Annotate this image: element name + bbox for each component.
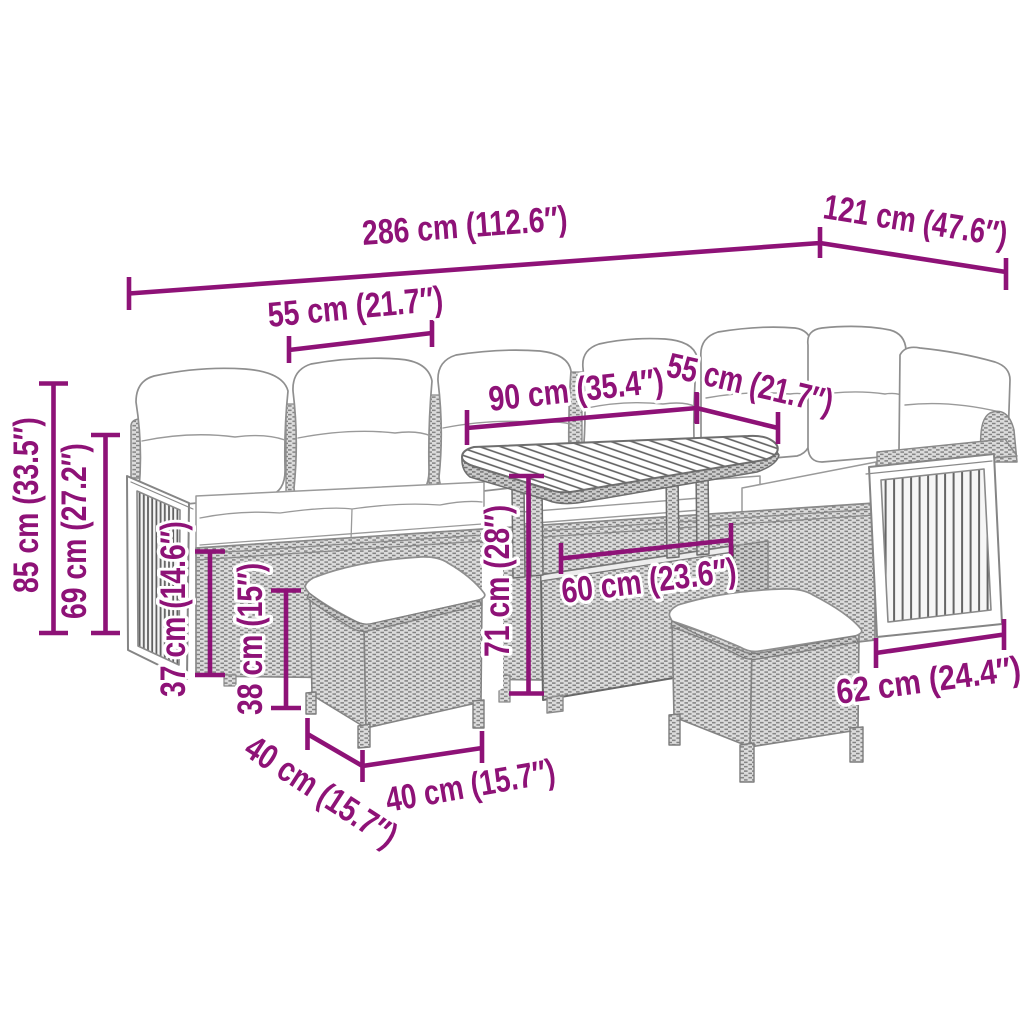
svg-text:38 cm (15″): 38 cm (15″)	[230, 563, 270, 715]
svg-text:286 cm (112.6″): 286 cm (112.6″)	[361, 198, 569, 253]
svg-text:55 cm (21.7″): 55 cm (21.7″)	[266, 278, 445, 334]
svg-text:62 cm (24.4″): 62 cm (24.4″)	[834, 649, 1023, 712]
svg-text:69 cm (27.2″): 69 cm (27.2″)	[54, 443, 94, 619]
svg-text:85 cm (33.5″): 85 cm (33.5″)	[6, 417, 46, 593]
svg-text:121 cm (47.6″): 121 cm (47.6″)	[821, 187, 1010, 254]
svg-text:40 cm (15.7″): 40 cm (15.7″)	[238, 727, 405, 855]
svg-text:37 cm (14.6″): 37 cm (14.6″)	[153, 521, 193, 697]
svg-text:71 cm (28″): 71 cm (28″)	[477, 505, 517, 657]
